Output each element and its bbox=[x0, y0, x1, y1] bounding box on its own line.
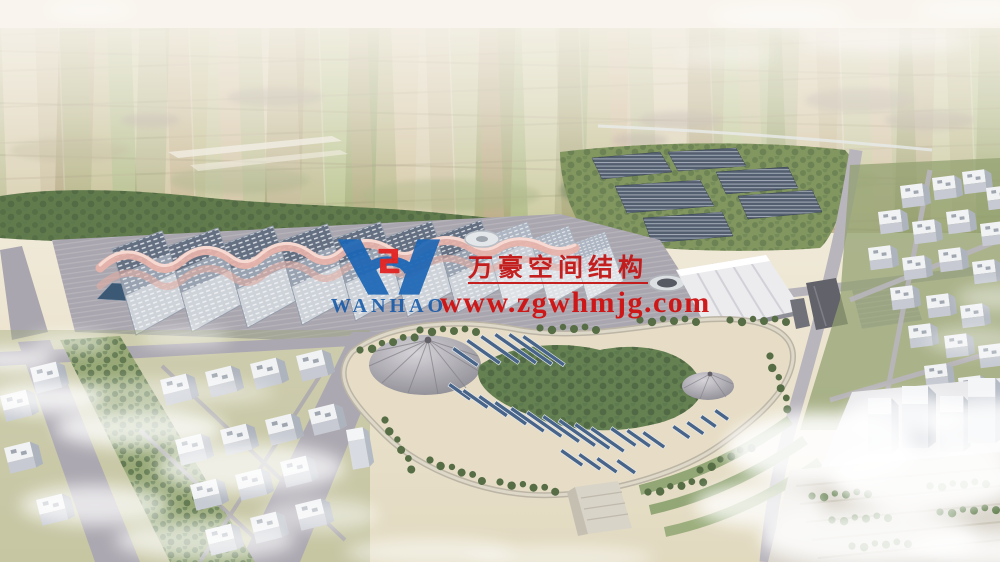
wanhao-logo-icon bbox=[336, 238, 442, 296]
watermark: WANHAO 万豪空间结构 www.zgwhmjg.com bbox=[0, 0, 1000, 562]
aerial-rendering: WANHAO 万豪空间结构 www.zgwhmjg.com bbox=[0, 0, 1000, 562]
watermark-logo-text: WANHAO bbox=[326, 295, 452, 318]
watermark-website: www.zgwhmjg.com bbox=[440, 286, 711, 320]
watermark-company-name: 万豪空间结构 bbox=[468, 248, 648, 284]
